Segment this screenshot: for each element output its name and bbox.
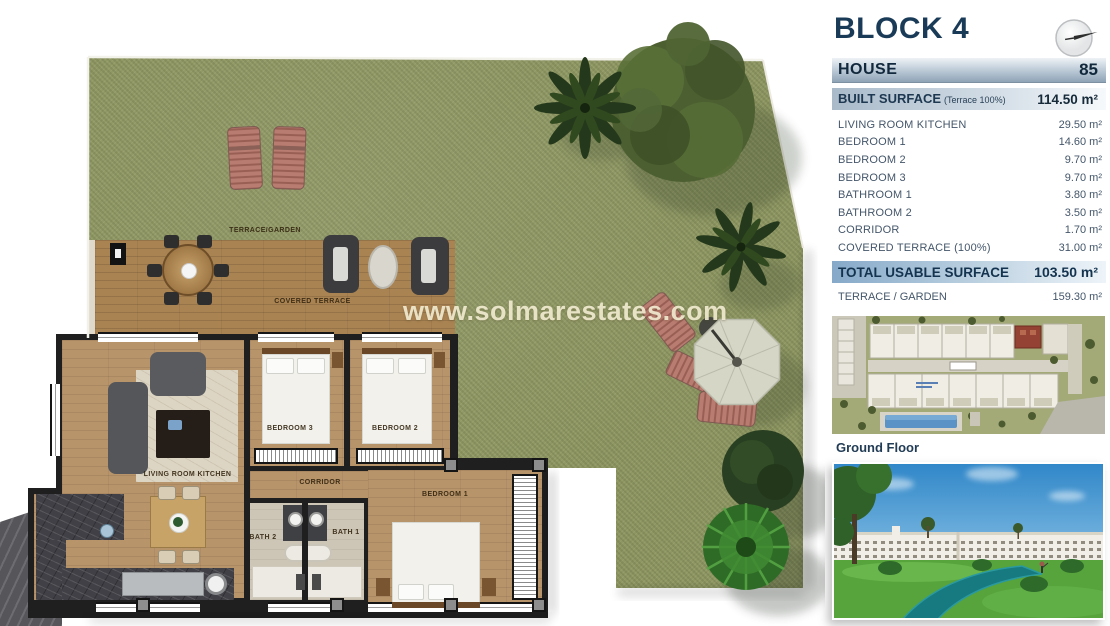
built-surface-value: 114.50 m² — [1037, 92, 1098, 107]
deck-chair — [147, 264, 162, 277]
living-coffee-table — [156, 410, 210, 458]
bed1-pillow — [398, 584, 424, 600]
window — [98, 332, 198, 342]
building-shadow — [548, 472, 555, 614]
table-row: BEDROOM 3 9.70 m² — [838, 169, 1102, 187]
row-label: BATHROOM 2 — [838, 207, 912, 219]
row-value: 14.60 m² — [1059, 136, 1102, 148]
bath1-sink — [309, 512, 324, 527]
bed3-nightstand — [332, 352, 343, 368]
deck-sofa-cushion — [421, 249, 436, 283]
row-value: 29.50 m² — [1059, 119, 1102, 131]
row-value: 3.80 m² — [1065, 189, 1102, 201]
bed1-nightstand — [482, 578, 496, 596]
block-title: BLOCK 4 — [834, 12, 969, 46]
table-row: BEDROOM 2 9.70 m² — [838, 151, 1102, 169]
bed2-pillow — [398, 358, 426, 374]
dining-chair — [182, 550, 200, 564]
deck-sofa-cushion — [333, 247, 348, 281]
terrace-garden-value: 159.30 m² — [1052, 291, 1102, 303]
site-plan-thumbnail — [832, 316, 1105, 434]
terrace-deck — [95, 240, 455, 334]
bed1-wardrobe — [512, 474, 538, 600]
house-number: 85 — [1079, 60, 1098, 80]
bed2-nightstand — [434, 352, 445, 368]
total-label: TOTAL USABLE SURFACE — [838, 265, 1009, 280]
label-bath2: BATH 2 — [240, 534, 286, 541]
label-bedroom1: BEDROOM 1 — [405, 491, 485, 498]
edge-shadow — [618, 588, 803, 596]
deck-coffee-table — [368, 245, 398, 289]
label-covered-terrace: COVERED TERRACE — [255, 298, 370, 305]
floorplan-brochure: TERRACE/GARDEN COVERED TERRACE LIVING RO… — [0, 0, 1110, 626]
bathtub — [284, 544, 332, 562]
row-value: 3.50 m² — [1065, 207, 1102, 219]
vehicle — [950, 362, 976, 370]
label-corridor: CORRIDOR — [285, 479, 355, 486]
deck-edge — [88, 240, 95, 334]
bed2-wardrobe — [356, 448, 444, 464]
built-surface-note: (Terrace 100%) — [944, 95, 1006, 105]
terrace-garden-label: TERRACE / GARDEN — [838, 291, 947, 303]
dining-chair — [158, 550, 176, 564]
deck-chair — [197, 235, 212, 248]
edge-shadow — [803, 250, 812, 588]
row-label: COVERED TERRACE (100%) — [838, 242, 991, 254]
row-label: CORRIDOR — [838, 224, 900, 236]
shower-fixture — [296, 574, 305, 590]
deck-chair — [164, 292, 179, 305]
living-armchair — [150, 352, 206, 396]
table-row: CORRIDOR 1.70 m² — [838, 222, 1102, 240]
coffee-table-decor — [168, 420, 182, 430]
window — [50, 384, 60, 456]
bed3-wardrobe — [254, 448, 338, 464]
kitchen-stainless-counter — [122, 572, 204, 596]
window — [258, 332, 334, 342]
resort-photo — [832, 462, 1105, 620]
table-row: COVERED TERRACE (100%) 31.00 m² — [838, 239, 1102, 257]
wall-post — [444, 598, 458, 612]
house-label: HOUSE — [838, 61, 897, 79]
row-value: 9.70 m² — [1065, 154, 1102, 166]
compass-icon — [1052, 16, 1100, 60]
wall-post — [136, 598, 150, 612]
deck-utility-box-inner — [115, 249, 121, 258]
room-surface-table: LIVING ROOM KITCHEN 29.50 m² BEDROOM 1 1… — [838, 116, 1102, 257]
bed1-nightstand — [376, 578, 390, 596]
row-value: 9.70 m² — [1065, 172, 1102, 184]
label-bedroom3: BEDROOM 3 — [252, 425, 328, 432]
row-label: BEDROOM 3 — [838, 172, 906, 184]
total-surface-bar: TOTAL USABLE SURFACE 103.50 m² — [832, 261, 1106, 283]
table-row: BATHROOM 2 3.50 m² — [838, 204, 1102, 222]
wall-post — [532, 598, 546, 612]
label-bath1: BATH 1 — [326, 529, 366, 536]
deck-table-centerpiece — [181, 263, 197, 279]
table-row: BATHROOM 1 3.80 m² — [838, 186, 1102, 204]
unit-row — [868, 374, 1058, 408]
built-surface-label: BUILT SURFACE — [838, 91, 941, 106]
row-label: BEDROOM 1 — [838, 136, 906, 148]
row-label: LIVING ROOM KITCHEN — [838, 119, 966, 131]
total-value: 103.50 m² — [1034, 264, 1098, 280]
table-row: LIVING ROOM KITCHEN 29.50 m² — [838, 116, 1102, 134]
label-living-room: LIVING ROOM KITCHEN — [120, 471, 255, 478]
site-plan-caption: Ground Floor — [836, 440, 919, 455]
row-label: BEDROOM 2 — [838, 154, 906, 166]
kitchen-oven — [205, 573, 227, 595]
highlighted-unit — [1015, 326, 1041, 348]
wall-post — [444, 458, 458, 472]
wall-post — [532, 458, 546, 472]
deck-chair — [164, 235, 179, 248]
label-bedroom2: BEDROOM 2 — [352, 425, 438, 432]
watermark: www.solmarestates.com — [403, 296, 728, 327]
built-surface-bar: BUILT SURFACE(Terrace 100%) 114.50 m² — [832, 88, 1106, 110]
shower-fixture — [312, 574, 321, 590]
row-label: BATHROOM 1 — [838, 189, 912, 201]
deck-chair — [197, 292, 212, 305]
bed1-headboard — [392, 602, 480, 608]
bed3-pillow — [297, 358, 325, 374]
living-sofa — [108, 382, 148, 474]
table-row: BEDROOM 1 14.60 m² — [838, 134, 1102, 152]
plan-area: TERRACE/GARDEN COVERED TERRACE LIVING RO… — [0, 0, 825, 626]
bed2-pillow — [366, 358, 394, 374]
dining-chair — [182, 486, 200, 500]
bed3-pillow — [266, 358, 294, 374]
dining-plant — [173, 517, 183, 527]
row-value: 1.70 m² — [1065, 224, 1102, 236]
terrace-garden-row: TERRACE / GARDEN 159.30 m² — [838, 291, 1102, 303]
row-value: 31.00 m² — [1059, 242, 1102, 254]
deck-chair — [214, 264, 229, 277]
window — [362, 332, 442, 342]
kitchen-sink — [100, 524, 114, 538]
label-terrace-garden: TERRACE/GARDEN — [200, 227, 330, 234]
wall-post — [330, 598, 344, 612]
info-sidebar: BLOCK 4 HOUSE 85 BUILT SURFACE(Terrace 1… — [828, 0, 1110, 626]
bath2-sink — [288, 512, 303, 527]
house-bar: HOUSE 85 — [832, 58, 1106, 83]
dining-chair — [158, 486, 176, 500]
